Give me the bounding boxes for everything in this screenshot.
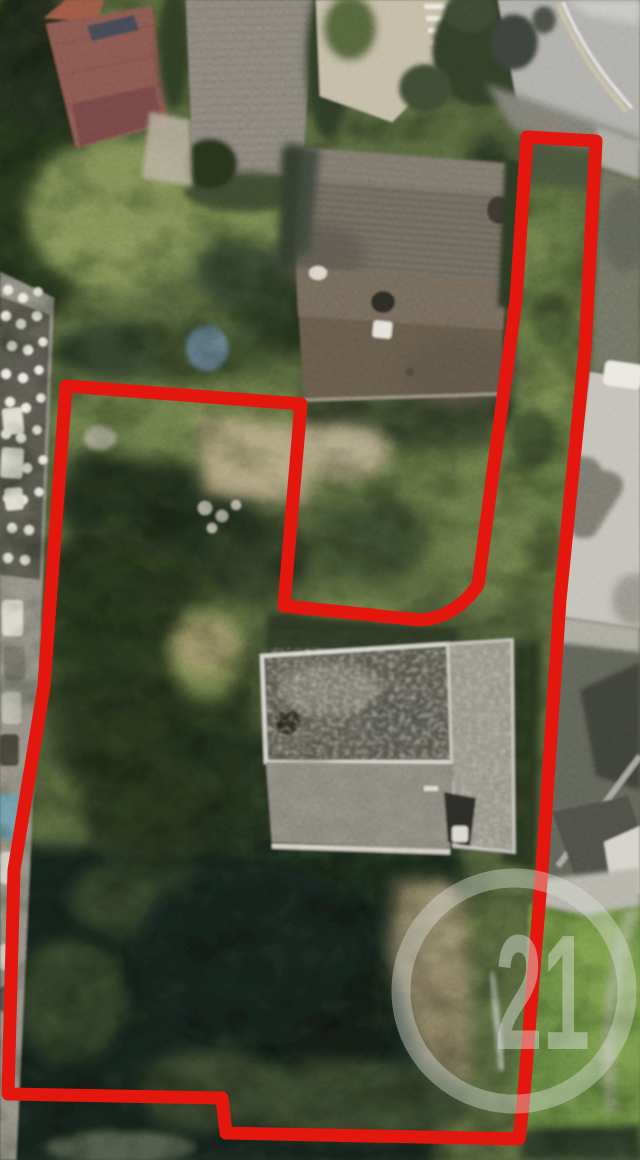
svg-text:21: 21 bbox=[495, 901, 590, 1084]
